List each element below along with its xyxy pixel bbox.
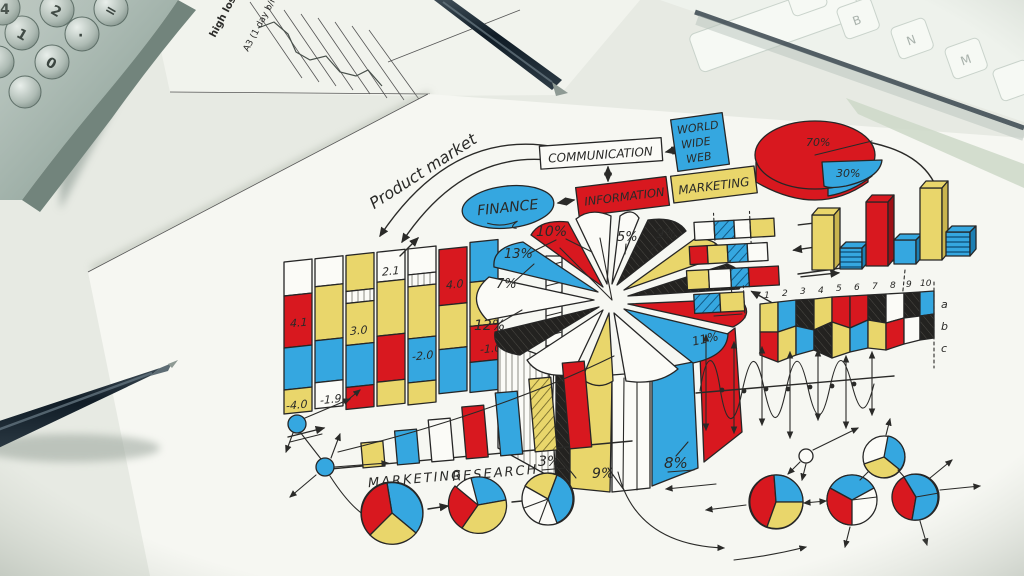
pie70-label: 70% (806, 136, 830, 149)
ribbon-value: 4.1 (290, 316, 307, 331)
mosaic-tick: 5 (836, 284, 842, 294)
pie-label-12: 12% (474, 318, 505, 334)
pie-label-9b: 9% (592, 466, 614, 482)
pie-label-13: 13% (504, 247, 533, 262)
bar3d-blue-1 (840, 242, 868, 269)
mosaic-tick: 10 (920, 279, 932, 289)
bar3d-yellow-2 (920, 181, 948, 260)
mosaic-tick: 3 (800, 287, 806, 297)
mosaic-tick: 1 (764, 291, 770, 301)
research-bar (395, 429, 420, 465)
ribbon-value: 2.1 (382, 264, 399, 279)
pie-label-9t: 9% (656, 227, 677, 242)
bar3d-blue-3 (946, 226, 976, 256)
bar3d-red (866, 195, 894, 266)
mosaic-tick: 6 (854, 283, 860, 293)
printed-sheet: high loss. A3 (1 day b/m) (150, 0, 640, 102)
mosaic-side-c: c (941, 342, 947, 355)
mosaic-tick: 4 (818, 286, 824, 296)
pie-seq-3 (522, 473, 574, 525)
flow-node-www: WORLD WIDE WEB (671, 113, 730, 172)
desk-photo-scene: high loss. A3 (1 day b/m) B N M 0 1 (0, 0, 1024, 576)
pie-seq-1 (361, 482, 423, 544)
calc-key-label: 4 (0, 2, 10, 18)
mosaic-side-b: b (941, 320, 948, 333)
pie-node-center (827, 475, 877, 525)
pie30-label: 30% (836, 167, 860, 180)
mosaic-tick: 8 (890, 281, 896, 291)
mosaic-tick: 7 (872, 282, 878, 292)
pie-node-right (892, 474, 939, 520)
pie-label-7b: 7% (496, 277, 517, 292)
desk-photo: high loss. A3 (1 day b/m) B N M 0 1 (0, 0, 1024, 576)
hbar-2 (689, 243, 768, 265)
ribbon-value: -4.0 (286, 398, 307, 413)
pie-node-left (749, 475, 803, 529)
mosaic-side-a: a (941, 298, 948, 311)
ribbon-value: 3.0 (350, 323, 367, 338)
ribbon-value: 4.0 (446, 277, 463, 292)
calculator-key-dot: · (65, 17, 99, 51)
pie-label-10: 10% (536, 224, 567, 240)
pie-seq-2 (448, 477, 506, 533)
calculator-key-partial (9, 76, 41, 108)
pie-label-8: 8% (664, 454, 688, 472)
research-bar (428, 418, 454, 462)
calculator-key-0: 0 (35, 45, 69, 79)
ribbon-value: -2.0 (412, 348, 433, 363)
pie-label-5: 5% (617, 230, 638, 245)
mosaic-tick: 9 (906, 280, 912, 290)
calc-key-label: · (78, 28, 83, 44)
bar3d-blue-2 (894, 234, 922, 264)
research-bar (462, 405, 488, 459)
ribbon-value: -1.9 (320, 392, 341, 407)
bar3d-yellow-1 (812, 208, 840, 270)
pie-node-top (863, 436, 905, 478)
mosaic-tick: 2 (782, 289, 788, 299)
pie-label-3: 3% (538, 454, 560, 470)
